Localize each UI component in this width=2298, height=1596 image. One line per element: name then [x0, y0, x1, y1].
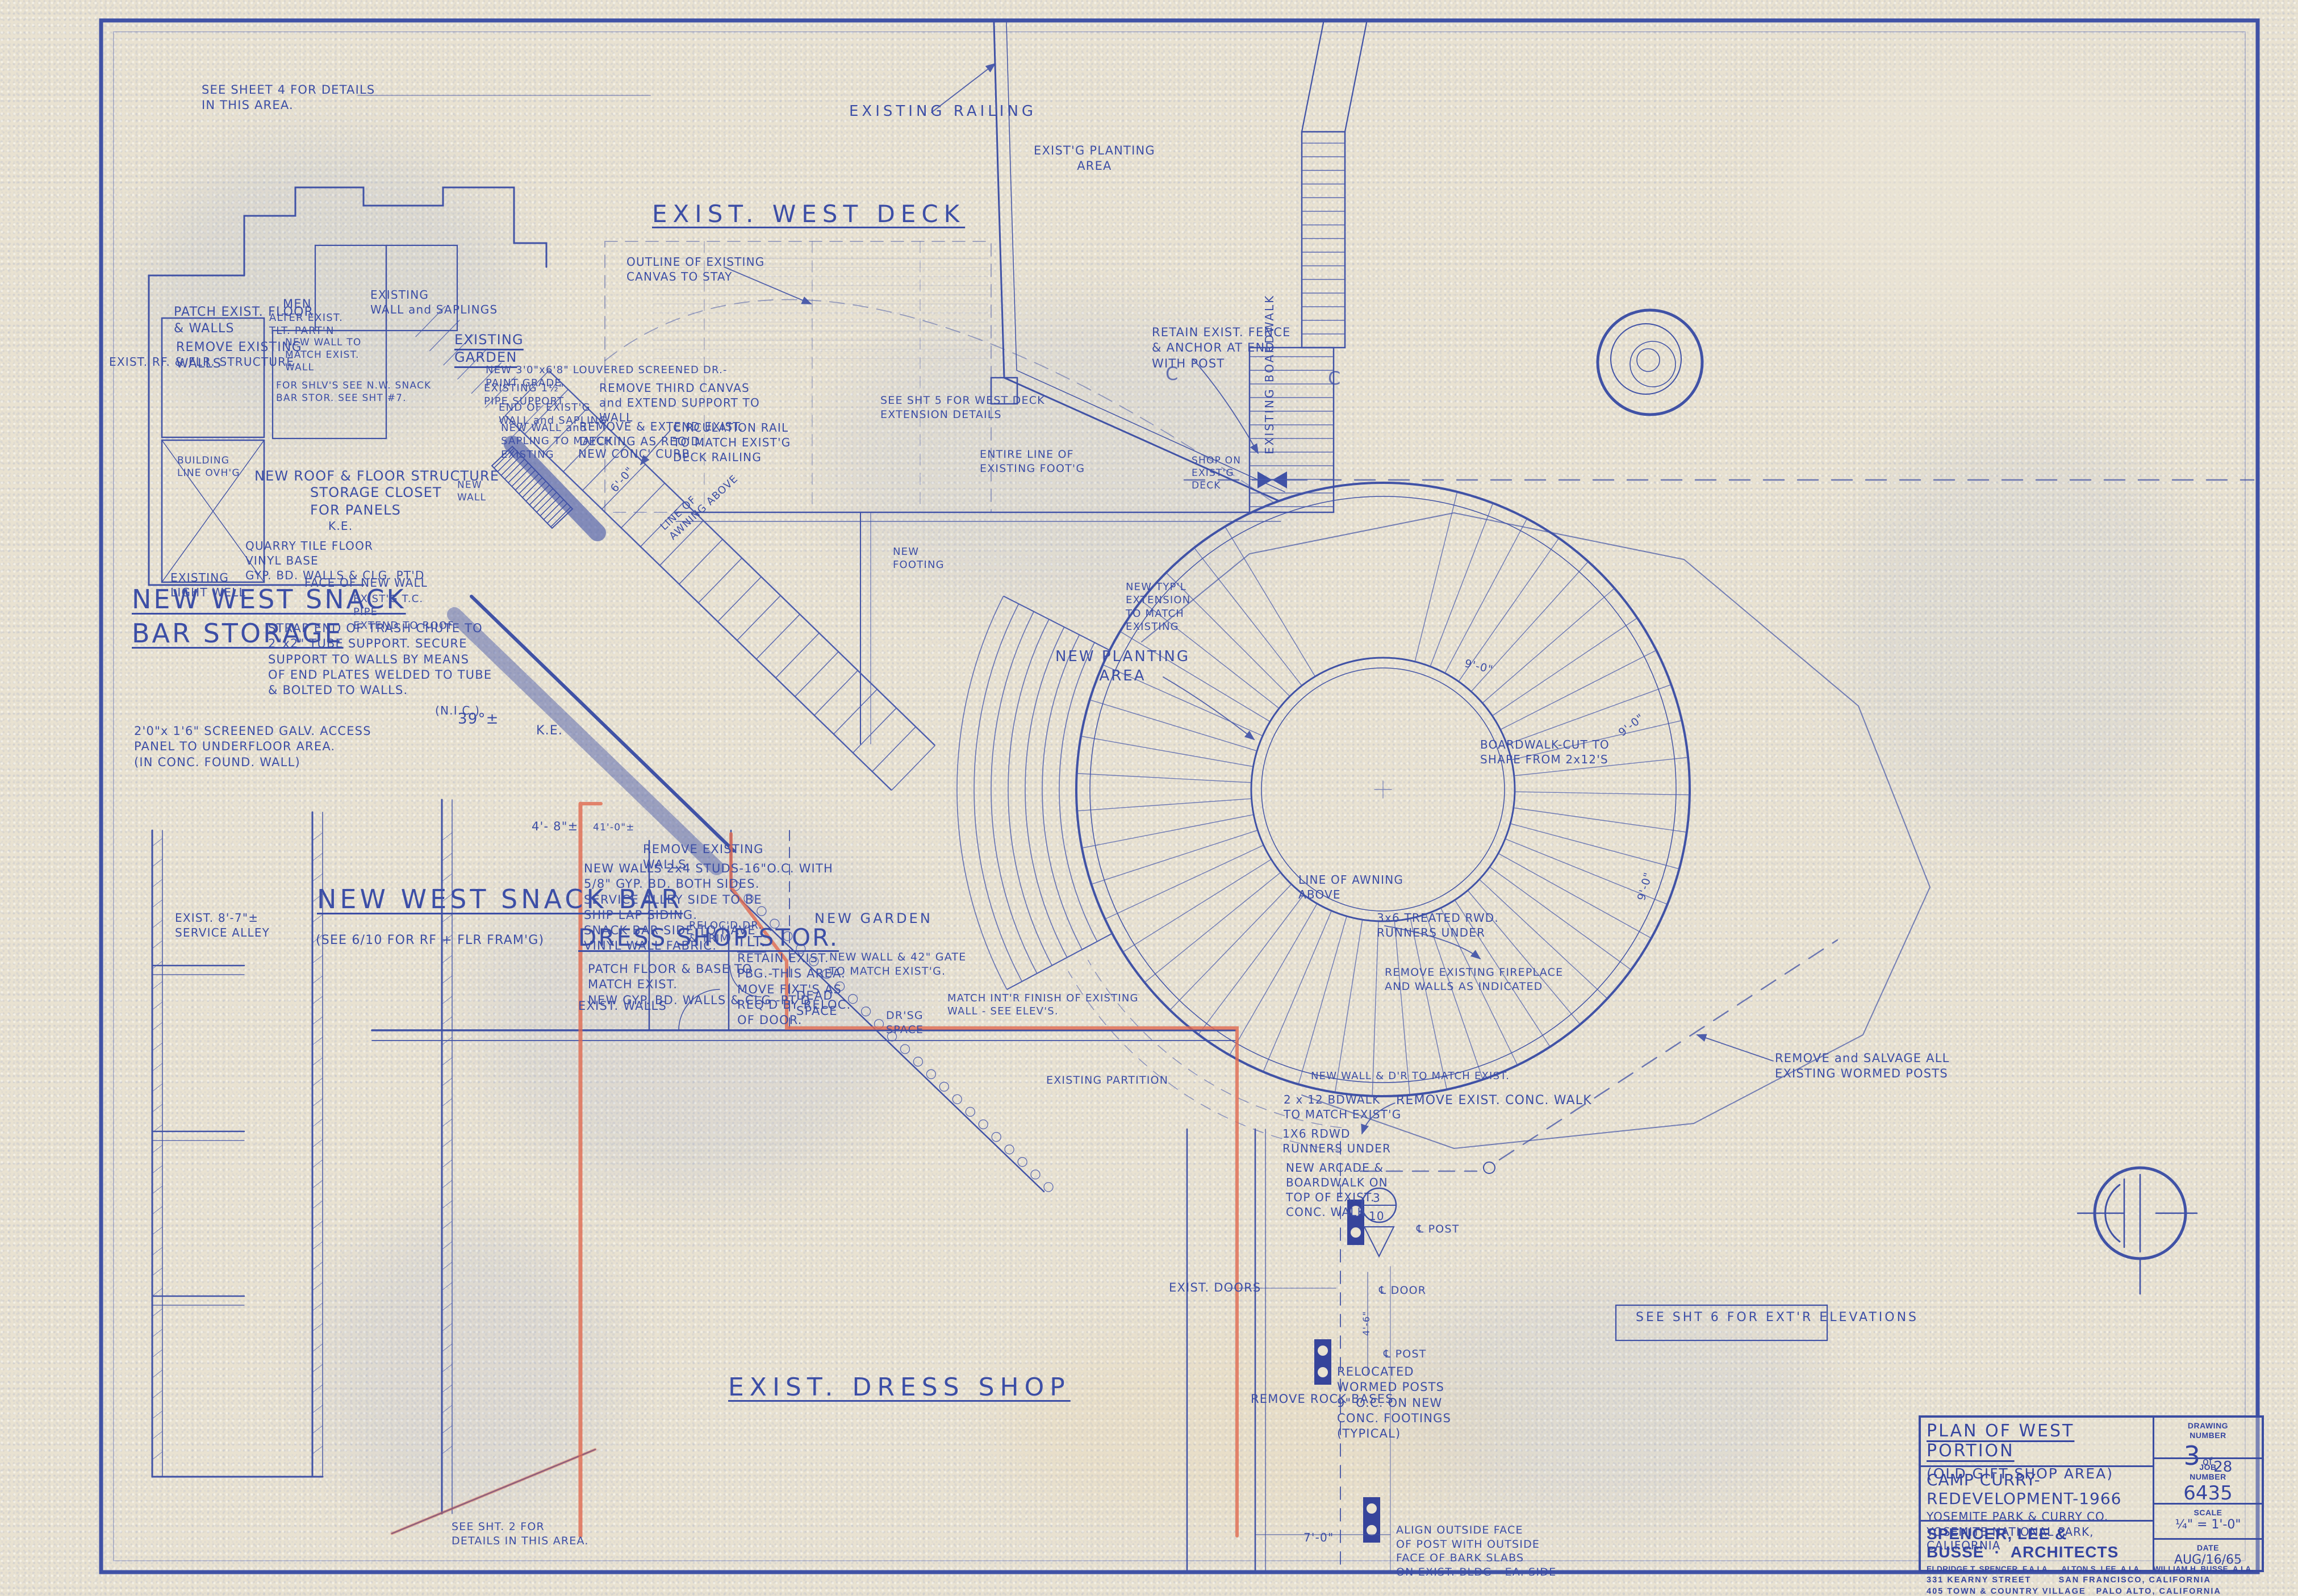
new-typl-extension-label: NEW TYP'L EXTENSION TO MATCH EXISTING [1126, 580, 1190, 634]
existing-garden-label: EXISTING GARDEN [454, 331, 524, 366]
new-garden-label: NEW GARDEN [814, 910, 933, 927]
job-number-value: 6435 [2154, 1482, 2262, 1505]
storage-closet-label: STORAGE CLOSET FOR PANELS [310, 484, 442, 519]
firm-address-pa: 405 TOWN & COUNTRY VILLAGE PALO ALTO, CA… [1927, 1587, 2147, 1596]
remove-salvage-posts-label: REMOVE and SALVAGE ALL EXISTING WORMED P… [1775, 1051, 1950, 1082]
cl-door-label: ℄ DOOR [1379, 1284, 1426, 1298]
dim-6-0-label: 6'-0" [608, 464, 637, 495]
align-outside-face-label: ALIGN OUTSIDE FACE OF POST WITH OUTSIDE … [1396, 1523, 1556, 1580]
dim-4-8-label: 4'- 8"± [532, 819, 578, 834]
service-alley-label: EXIST. 8'-7"± SERVICE ALLEY [175, 910, 270, 940]
firm-address-sf: 331 KEARNY STREET SAN FRANCISCO, CALIFOR… [1927, 1576, 2147, 1585]
line-of-awning-b-label: LINE OF AWNING ABOVE [1298, 872, 1403, 902]
dim-41-0-label: 41'-0"± [593, 821, 635, 834]
ke-a-label: K.E. [328, 519, 353, 533]
see-sht-2-label: SEE SHT. 2 FOR DETAILS IN THIS AREA. [452, 1520, 589, 1548]
job-number-label: JOB NUMBER [2154, 1459, 2262, 1482]
rdwd-runners-label: 1X6 RDWD RUNNERS UNDER [1282, 1126, 1391, 1156]
existg-tc-pipe-label: EXIST'G T.C. PIPE EXTEND TO ROOF [353, 592, 454, 632]
new-wall-dr-match-label: NEW WALL & D'R TO MATCH EXIST. [1311, 1069, 1510, 1083]
project-name: CAMP CURRY-REDEVELOPMENT-1966 [1927, 1470, 2147, 1508]
line-of-awning-a-label: LINE OF AWNING ABOVE [658, 463, 741, 544]
existing-railing-label: EXISTING RAILING [849, 102, 1037, 122]
grid-letter-c1-label: C [1165, 362, 1179, 386]
patch-exist-floor-walls-label: PATCH EXIST. FLOOR & WALLS [174, 304, 314, 337]
new-planting-area-label: NEW PLANTING AREA [1055, 647, 1190, 686]
new-wall-gate-label: NEW WALL & 42" GATE TO MATCH EXIST'G. [829, 950, 966, 978]
remove-third-canvas-label: REMOVE THIRD CANVAS and EXTEND SUPPORT T… [599, 381, 760, 425]
existing-wall-saplings-label: EXISTING WALL and SAPLINGS [370, 287, 498, 317]
existing-partition-label: EXISTING PARTITION [1046, 1073, 1168, 1088]
deg-39-label: 39°± [458, 710, 499, 729]
scale-label: SCALE [2154, 1505, 2262, 1518]
annotations-layer: SEE SHEET 4 FOR DETAILS IN THIS AREA.EXI… [0, 0, 2298, 1590]
firm-separator-dot: · [1994, 1543, 2000, 1561]
dress-shop-stor-heading-label: DRESS SHOP STOR. [578, 922, 839, 954]
blueprint-sheet: { "palette": { "ink": "#3c4ea6", "red_pe… [0, 0, 2298, 1590]
dim-7-0-label: 7'-0" [1303, 1530, 1334, 1545]
see-sheet-4-label: SEE SHEET 4 FOR DETAILS IN THIS AREA. [202, 82, 375, 114]
entire-line-footing-label: ENTIRE LINE OF EXISTING FOOT'G [980, 448, 1085, 475]
exist-rf-flr-structure-label: EXIST. RF. & FLR. STRUCTURE [109, 354, 294, 369]
title-block-right: DRAWING NUMBER 3of28 JOB NUMBER 6435 SCA… [2153, 1418, 2262, 1570]
cl-post-b-label: ℄ POST [1384, 1347, 1427, 1361]
firm-principals: ELDRIDGE T. SPENCER, F.A.I.A. ALTON S. L… [1927, 1565, 2147, 1573]
snack-bar-subtitle-label: (SEE 6/10 FOR RF + FLR FRAM'G) [316, 933, 544, 949]
scale-value: ¼" = 1'-0" [2154, 1518, 2262, 1532]
treated-rwd-runners-label: 3x6 TREATED RWD. RUNNERS UNDER [1377, 910, 1499, 940]
remove-exist-conc-walk-label: REMOVE EXIST. CONC. WALK [1396, 1093, 1592, 1109]
bdwalk-2x12-label: 2 x 12 BDWALK TO MATCH EXIST'G [1284, 1092, 1401, 1122]
screened-galv-panel-label: 2'0"x 1'6" SCREENED GALV. ACCESS PANEL T… [134, 724, 371, 770]
drsg-space-label: DR'SG SPACE [886, 1009, 924, 1037]
existing-boardwalk-label: EXISTING BOARDWALK [1262, 294, 1277, 454]
face-of-new-wall-label: FACE OF NEW WALL [304, 575, 428, 590]
existg-planting-area-label: EXIST'G PLANTING AREA [1034, 143, 1155, 174]
new-footing-label: NEW FOOTING [893, 545, 945, 572]
firm-title: ARCHITECTS [2011, 1543, 2119, 1561]
dim-9-0-c-label: 9'-0" [1635, 871, 1656, 903]
match-intr-finish-label: MATCH INT'R FINISH OF EXISTING WALL - SE… [947, 992, 1139, 1018]
detail-marker-3-label: 3 [1373, 1190, 1381, 1205]
title-block-left: PLAN OF WEST PORTION (OLD GIFT SHOP AREA… [1921, 1418, 2153, 1570]
dim-4-6-label: 4'-6" [1361, 1311, 1373, 1336]
exist-west-deck-heading-label: EXIST. WEST DECK [652, 199, 965, 230]
date-label: DATE [2154, 1540, 2262, 1553]
remove-fireplace-label: REMOVE EXISTING FIREPLACE AND WALLS AS I… [1385, 966, 1563, 993]
shop-on-deck-label: SHOP ON EXIST'G DECK [1192, 454, 1241, 492]
firm-name-row: SPENCER, LEE & BUSSE·ARCHITECTS [1927, 1525, 2147, 1561]
exist-dress-shop-heading-label: EXIST. DRESS SHOP [728, 1371, 1071, 1403]
boardwalk-cut-label: BOARDWALK-CUT TO SHAPE FROM 2x12'S [1480, 737, 1610, 767]
ke-b-label: K.E. [536, 723, 563, 739]
for-shelves-note-label: FOR SHLV'S SEE N.W. SNACK BAR STOR. SEE … [276, 379, 431, 404]
circulation-rail-label: CIRCULATION RAIL TO MATCH EXIST'G DECK R… [673, 420, 791, 465]
title-block: PLAN OF WEST PORTION (OLD GIFT SHOP AREA… [1919, 1415, 2264, 1572]
grid-letter-c2-label: C [1328, 367, 1342, 391]
tlt-label-label: TLT. [737, 933, 766, 951]
date-value: AUG/16/65 [2154, 1553, 2262, 1567]
see-sht-6-box-label: SEE SHT 6 FOR EXT'R ELEVATIONS [1636, 1310, 1919, 1326]
see-sht-west-deck-label: SEE SHT 5 FOR WEST DECK EXTENSION DETAIL… [880, 394, 1045, 421]
building-line-ovhg-label: BUILDING LINE OVH'G [177, 454, 240, 479]
detail-marker-10-label: 10 [1369, 1209, 1385, 1223]
exist-doors-label: EXIST. DOORS [1169, 1280, 1261, 1296]
drawing-number-label: DRAWING NUMBER [2154, 1418, 2262, 1440]
remove-rock-bases-label: REMOVE ROCK BASES [1251, 1392, 1394, 1407]
exist-walls-label: EXIST. WALLS [578, 998, 667, 1014]
dim-9-0-a-label: 9'-0" [1463, 657, 1494, 677]
cl-post-a-label: ℄ POST [1417, 1222, 1460, 1236]
drawing-title: PLAN OF WEST PORTION [1927, 1421, 2147, 1461]
dim-9-0-b-label: 9'-0" [1616, 711, 1647, 740]
outline-canvas-label: OUTLINE OF EXISTING CANVAS TO STAY [626, 254, 765, 284]
new-wall-small-label: NEW WALL [457, 479, 486, 504]
